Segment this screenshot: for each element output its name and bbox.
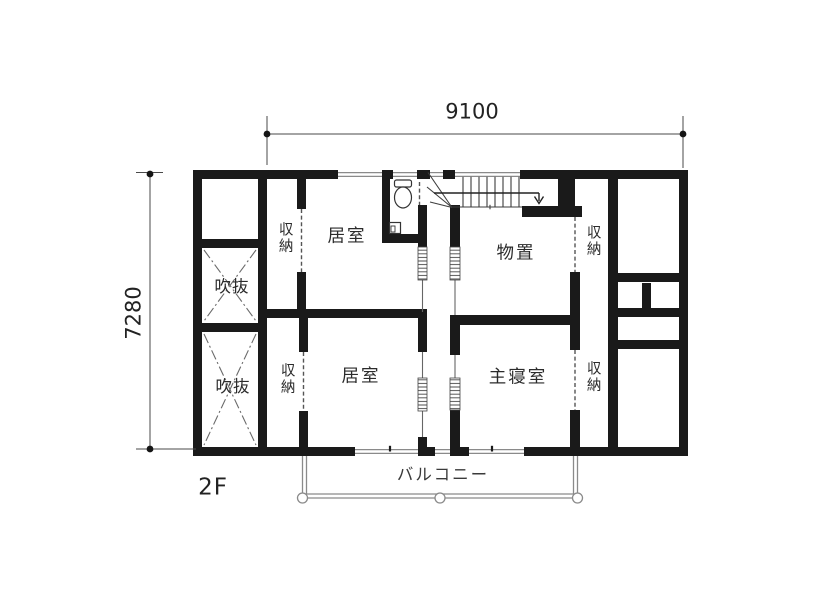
room-label-room-upper: 居室 <box>328 228 367 246</box>
interior-walls <box>202 179 688 456</box>
room-label-void-upper: 吹抜 <box>215 279 250 296</box>
room-label-storage: 物置 <box>497 245 536 263</box>
floor-label: 2F <box>198 477 228 500</box>
room-label-closet-lower-left: 収納 <box>278 363 293 396</box>
dimension-depth-label: 7280 <box>124 286 145 339</box>
balcony-post <box>298 493 308 503</box>
room-label-closet-lower-right: 収納 <box>584 361 599 394</box>
room-label-closet-upper-right: 収納 <box>584 225 599 258</box>
room-label-closet-upper-left: 収納 <box>276 222 291 255</box>
floor-plan: 9100 7280 吹抜 吹抜 収納 収納 収納 収納 居室 居室 物置 主寝室… <box>0 0 830 611</box>
balcony-post <box>573 493 583 503</box>
stairs-down-arrow <box>434 193 544 204</box>
balcony-post <box>435 493 445 503</box>
toilet-icon <box>390 180 412 234</box>
room-label-void-lower: 吹抜 <box>216 379 251 396</box>
dimension-width-label: 9100 <box>445 102 498 123</box>
room-label-balcony: バルコニー <box>397 467 489 484</box>
room-label-master-bedroom: 主寝室 <box>489 369 548 387</box>
room-label-room-lower: 居室 <box>342 368 381 386</box>
